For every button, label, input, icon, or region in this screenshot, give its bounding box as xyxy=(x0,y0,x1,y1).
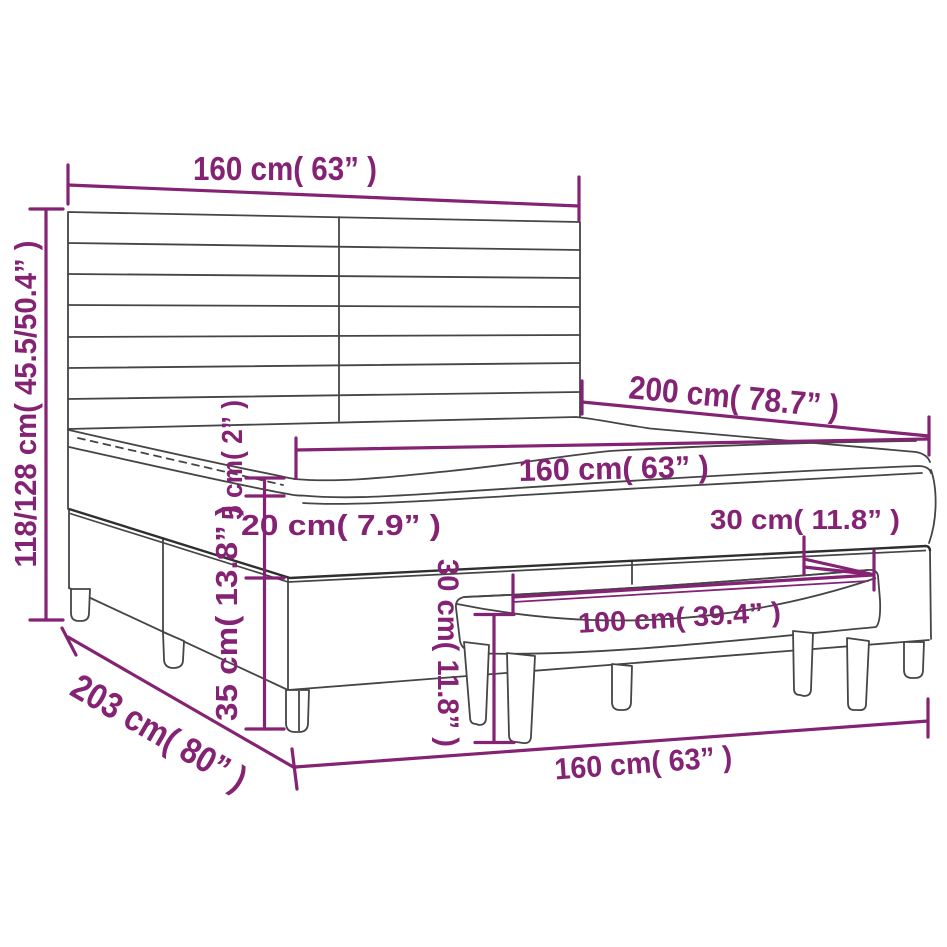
svg-text:20 cm( 7.9” ): 20 cm( 7.9” ) xyxy=(241,510,441,542)
svg-text:30 cm( 11.8” ): 30 cm( 11.8” ) xyxy=(710,504,900,535)
svg-text:160 cm( 63” ): 160 cm( 63” ) xyxy=(518,449,709,488)
svg-text:30 cm( 11.8” ): 30 cm( 11.8” ) xyxy=(431,559,464,747)
svg-text:5 cm( 2” ): 5 cm( 2” ) xyxy=(217,400,249,520)
svg-text:118/128 cm( 45.5/50.4” ): 118/128 cm( 45.5/50.4” ) xyxy=(8,241,43,568)
svg-text:160 cm( 63” ): 160 cm( 63” ) xyxy=(193,150,377,187)
svg-text:35 cm( 13.8” ): 35 cm( 13.8” ) xyxy=(209,505,244,721)
